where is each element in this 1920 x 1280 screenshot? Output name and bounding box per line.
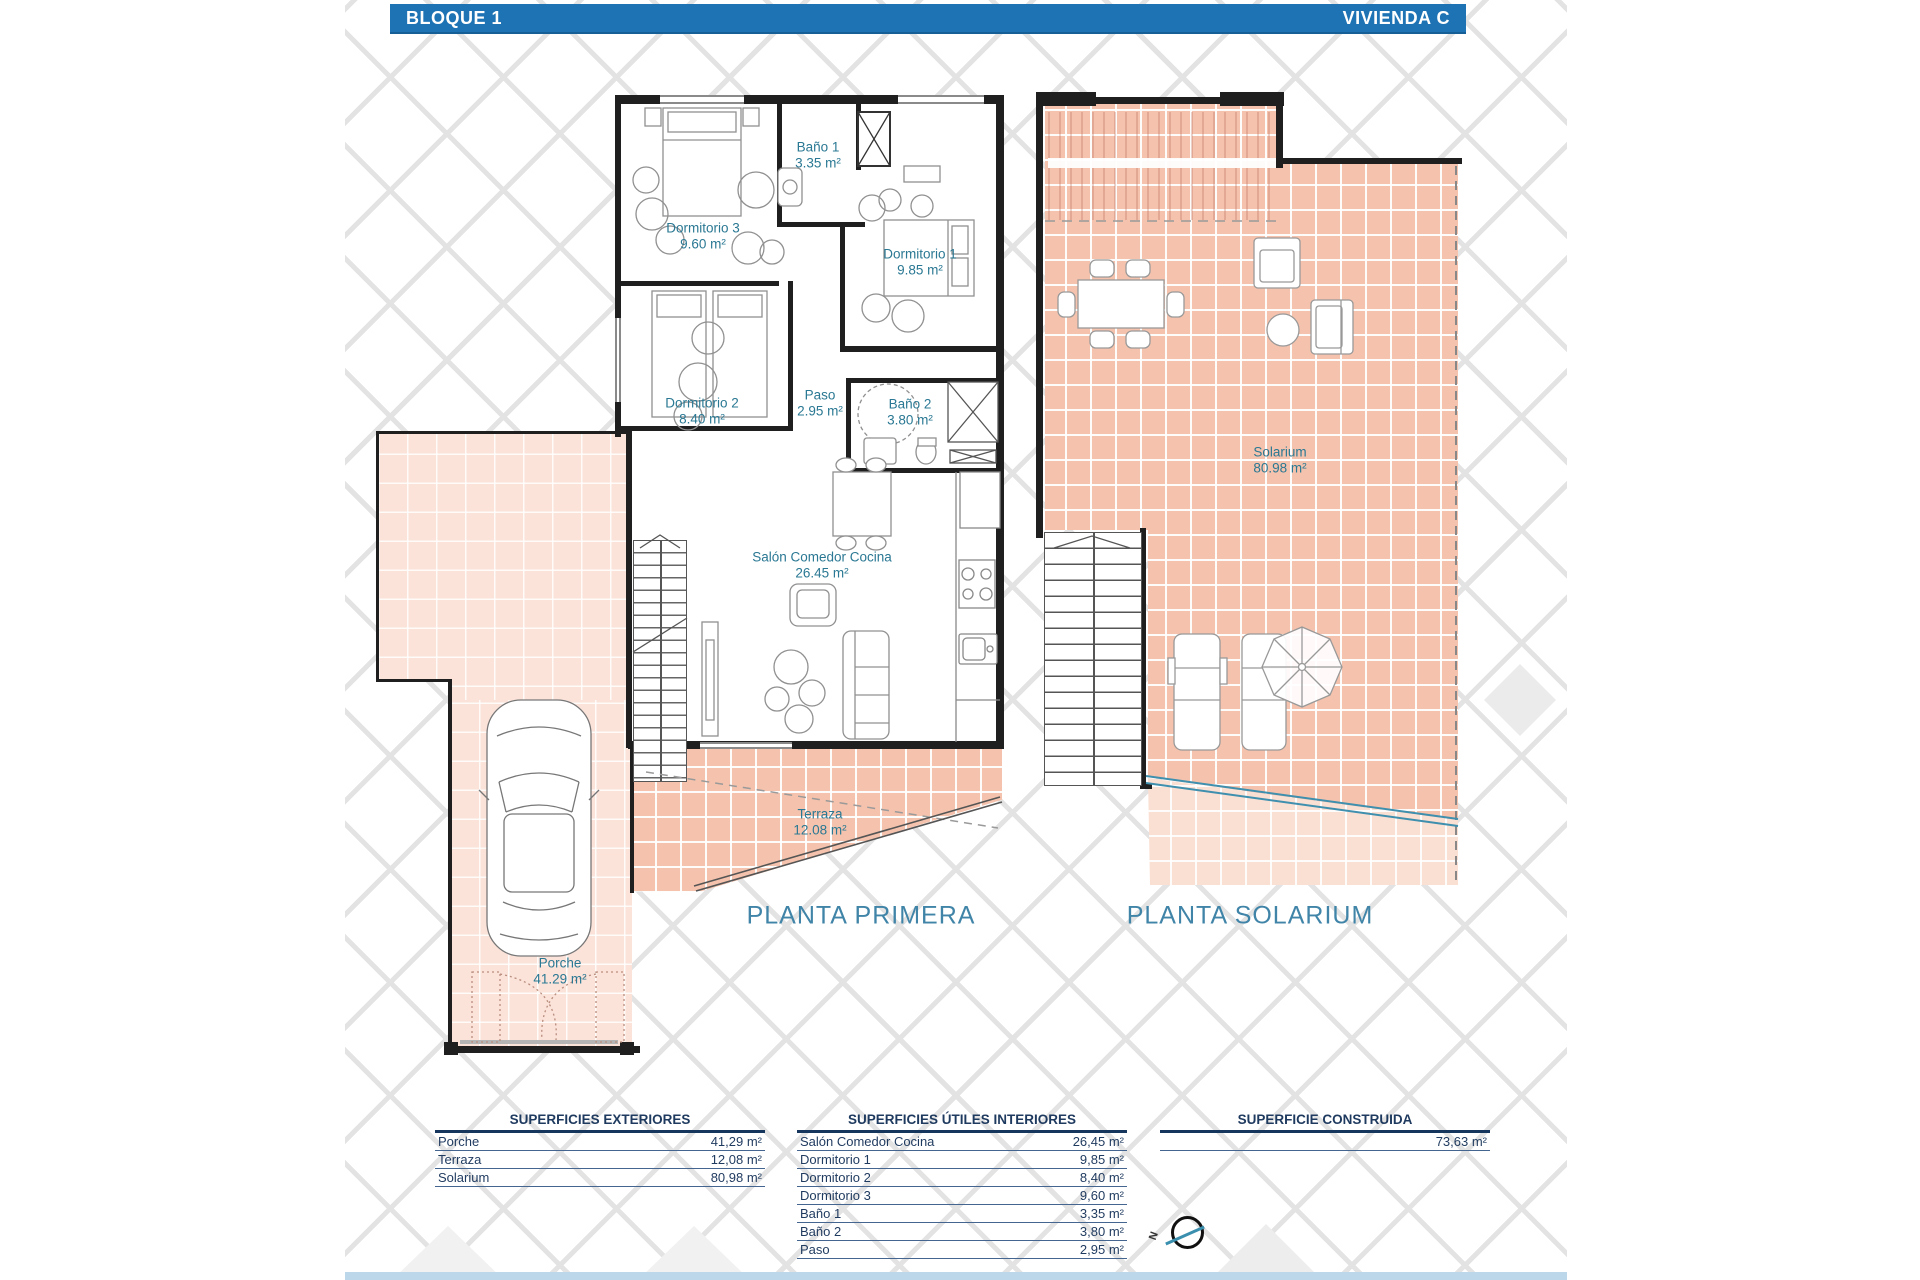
room-label-banio1: Baño 1 3.35 m² xyxy=(795,140,841,173)
title-bar: BLOQUE 1 VIVIENDA C xyxy=(390,4,1466,34)
room-name: Solarium xyxy=(1253,445,1306,461)
row-value: 3,35 m² xyxy=(1080,1206,1124,1221)
plan-title-primera: PLANTA PRIMERA xyxy=(747,902,976,931)
room-label-terraza: Terraza 12.08 m² xyxy=(793,807,846,840)
room-label-dorm2: Dormitorio 2 8.40 m² xyxy=(665,396,739,429)
row-label: Dormitorio 3 xyxy=(800,1188,871,1203)
room-label-banio2: Baño 2 3.80 m² xyxy=(887,397,933,430)
row-value: 73,63 m² xyxy=(1436,1134,1487,1149)
room-label-dorm3: Dormitorio 3 9.60 m² xyxy=(666,221,740,254)
sun-lounger-icon xyxy=(1168,634,1227,750)
room-name: Baño 2 xyxy=(887,397,933,413)
round-table-icon xyxy=(1267,314,1299,346)
table-row: Dormitorio 1 9,85 m² xyxy=(797,1151,1127,1169)
row-value: 3,80 m² xyxy=(1080,1224,1124,1239)
room-area: 3.80 m² xyxy=(887,413,933,429)
room-area: 9.60 m² xyxy=(666,237,740,253)
row-value: 9,60 m² xyxy=(1080,1188,1124,1203)
room-area: 9.85 m² xyxy=(883,263,957,279)
stair-arrow xyxy=(1054,536,1130,548)
room-name: Paso xyxy=(797,388,843,404)
table-superficies-utiles-interiores: SUPERFICIES ÚTILES INTERIORES Salón Come… xyxy=(797,1112,1127,1259)
stair-break-line xyxy=(633,535,687,652)
table-row: Porche 41,29 m² xyxy=(435,1133,765,1151)
row-label: Dormitorio 2 xyxy=(800,1170,871,1185)
kitchen-icons xyxy=(956,472,1000,742)
table-row: Baño 1 3,35 m² xyxy=(797,1205,1127,1223)
room-area: 8.40 m² xyxy=(665,412,739,428)
row-label: Paso xyxy=(800,1242,830,1257)
outdoor-dining-table-icon xyxy=(1058,260,1184,348)
row-value: 8,40 m² xyxy=(1080,1170,1124,1185)
footer-strip xyxy=(345,1272,1567,1280)
table-row: Solarium 80,98 m² xyxy=(435,1169,765,1187)
table-row: Salón Comedor Cocina 26,45 m² xyxy=(797,1133,1127,1151)
room-name: Dormitorio 1 xyxy=(883,247,957,263)
block-title: BLOQUE 1 xyxy=(406,8,502,29)
room-area: 3.35 m² xyxy=(795,156,841,172)
table-row: Baño 2 3,80 m² xyxy=(797,1223,1127,1241)
row-value: 80,98 m² xyxy=(711,1170,762,1185)
shaft-icon xyxy=(858,112,890,166)
double-bed-icon xyxy=(645,108,759,216)
row-value: 41,29 m² xyxy=(711,1134,762,1149)
room-label-dorm1: Dormitorio 1 9.85 m² xyxy=(883,247,957,280)
table-superficie-construida: SUPERFICIE CONSTRUIDA 73,63 m² xyxy=(1160,1112,1490,1151)
row-label: Porche xyxy=(438,1134,479,1149)
row-value: 2,95 m² xyxy=(1080,1242,1124,1257)
glass-railing xyxy=(1146,776,1458,826)
table-row: 73,63 m² xyxy=(1160,1133,1490,1151)
table-title: SUPERFICIES EXTERIORES xyxy=(435,1112,765,1133)
umbrella-icon xyxy=(1262,627,1342,707)
row-value: 9,85 m² xyxy=(1080,1152,1124,1167)
row-label: Baño 1 xyxy=(800,1206,841,1221)
plan-title-solarium: PLANTA SOLARIUM xyxy=(1127,902,1374,931)
row-label: Solarium xyxy=(438,1170,489,1185)
row-label: Terraza xyxy=(438,1152,481,1167)
table-title: SUPERFICIE CONSTRUIDA xyxy=(1160,1112,1490,1133)
floorplan-sheet: BLOQUE 1 VIVIENDA C xyxy=(0,0,1920,1280)
car-icon xyxy=(479,700,599,956)
room-name: Dormitorio 2 xyxy=(665,396,739,412)
tv-unit-icon xyxy=(702,622,718,736)
room-label-paso: Paso 2.95 m² xyxy=(797,388,843,421)
room-label-solarium: Solarium 80.98 m² xyxy=(1253,445,1306,478)
room-area: 80.98 m² xyxy=(1253,461,1306,477)
furniture-layer-solarium xyxy=(1030,80,1470,910)
table-row: Dormitorio 2 8,40 m² xyxy=(797,1169,1127,1187)
coffee-table-icon xyxy=(765,650,825,733)
table-row: Dormitorio 3 9,60 m² xyxy=(797,1187,1127,1205)
row-label: Baño 2 xyxy=(800,1224,841,1239)
table-row: Paso 2,95 m² xyxy=(797,1241,1127,1259)
room-name: Salón Comedor Cocina xyxy=(752,550,892,566)
row-label: Dormitorio 1 xyxy=(800,1152,871,1167)
row-label: Salón Comedor Cocina xyxy=(800,1134,934,1149)
room-name: Porche xyxy=(533,956,586,972)
outdoor-armchair-icon xyxy=(1254,238,1300,288)
room-label-salon: Salón Comedor Cocina 26.45 m² xyxy=(752,550,892,583)
room-label-porche: Porche 41.29 m² xyxy=(533,956,586,989)
outdoor-armchair-icon xyxy=(1311,300,1353,354)
room-name: Baño 1 xyxy=(795,140,841,156)
room-area: 12.08 m² xyxy=(793,823,846,839)
bedside-table-icon xyxy=(904,166,940,182)
armchair-icon xyxy=(790,584,836,626)
row-value: 26,45 m² xyxy=(1073,1134,1124,1149)
room-name: Dormitorio 3 xyxy=(666,221,740,237)
bathroom1-sink-icon xyxy=(778,168,802,206)
table-superficies-exteriores: SUPERFICIES EXTERIORES Porche 41,29 m² T… xyxy=(435,1112,765,1187)
row-value: 12,08 m² xyxy=(711,1152,762,1167)
closet-icon xyxy=(948,382,998,463)
room-name: Terraza xyxy=(793,807,846,823)
table-row: Terraza 12,08 m² xyxy=(435,1151,765,1169)
dining-table-icon xyxy=(833,458,891,550)
room-area: 26.45 m² xyxy=(752,566,892,582)
room-area: 41.29 m² xyxy=(533,972,586,988)
sofa-icon xyxy=(843,631,889,739)
room-area: 2.95 m² xyxy=(797,404,843,420)
table-title: SUPERFICIES ÚTILES INTERIORES xyxy=(797,1112,1127,1133)
unit-title: VIVIENDA C xyxy=(1343,8,1450,29)
